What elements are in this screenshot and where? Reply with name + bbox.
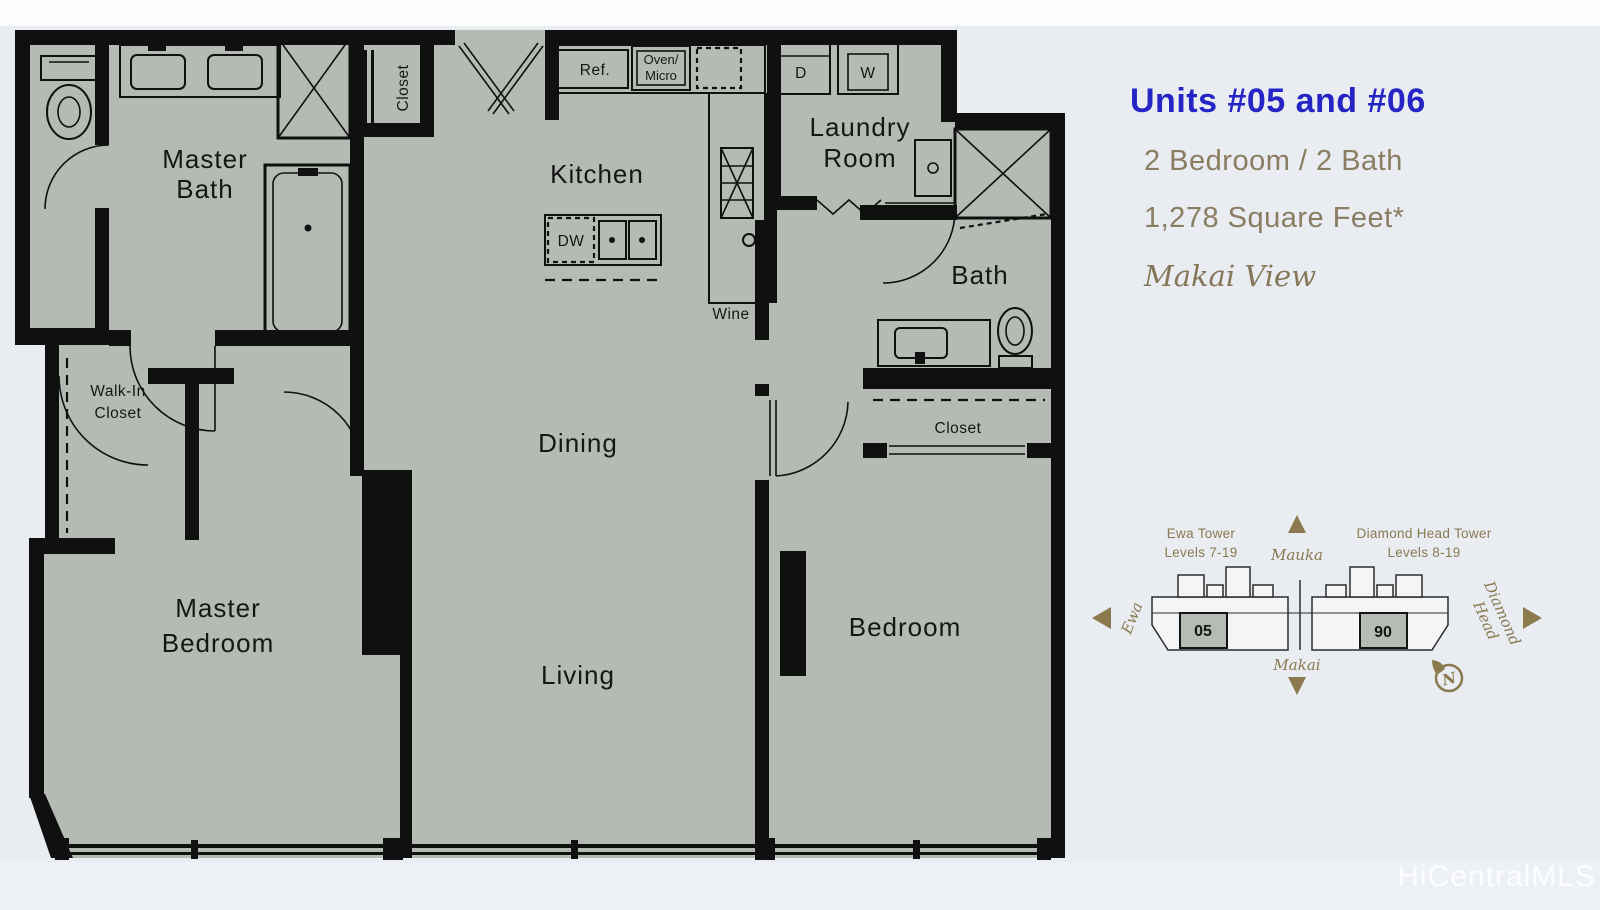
- compass-icon: N: [1432, 660, 1462, 691]
- ewa-arrow-icon: [1092, 607, 1111, 629]
- building-footprint: 05 06: [1152, 567, 1448, 650]
- bath-label: Bath: [951, 260, 1009, 290]
- dh-tower-levels: Levels 8-19: [1387, 545, 1460, 560]
- site-diagram: Ewa Tower Levels 7-19 Diamond Head Tower…: [1090, 505, 1570, 715]
- mauka-label: Mauka: [1270, 546, 1323, 564]
- living-label: Living: [541, 660, 615, 690]
- floorplan-drawing: Master Bath Closet Walk-In Closet: [15, 28, 1065, 860]
- master-bath-label: Master: [162, 144, 247, 174]
- laundry-label: Laundry: [810, 112, 911, 142]
- ewa-label-group: Ewa: [1117, 599, 1146, 637]
- washer-label: W: [860, 65, 875, 82]
- makai-label: Makai: [1272, 656, 1320, 674]
- diamond-head-arrow-icon: [1523, 607, 1542, 629]
- walk-in-closet-label: Walk-In: [90, 383, 145, 400]
- micro-label: Micro: [645, 68, 677, 83]
- sqft-line: 1,278 Square Feet*: [1144, 202, 1550, 235]
- watermark: HiCentralMLS: [1397, 860, 1596, 894]
- ewa-tower-label: Ewa Tower: [1167, 526, 1236, 541]
- oven-label: Oven/: [644, 52, 679, 67]
- entry-closet-label: Closet: [395, 64, 412, 111]
- ewa-label: Ewa: [1117, 599, 1146, 637]
- walk-in-closet-label-2: Closet: [95, 405, 142, 422]
- kitchen-label: Kitchen: [550, 159, 644, 189]
- diamond-head-label-group: Diamond Head: [1463, 578, 1524, 656]
- makai-arrow-icon: [1288, 677, 1306, 695]
- bedroom-label: Bedroom: [849, 612, 962, 642]
- bottom-margin: [0, 862, 1600, 910]
- master-bedroom-label-2: Bedroom: [162, 628, 275, 658]
- master-bedroom-label: Master: [175, 593, 260, 623]
- dining-label: Dining: [538, 428, 618, 458]
- info-panel: Units #05 and #06 2 Bedroom / 2 Bath 1,2…: [1130, 82, 1550, 293]
- bedroom-closet-label: Closet: [935, 420, 982, 437]
- mauka-arrow-icon: [1288, 515, 1306, 533]
- floorplan-page: Master Bath Closet Walk-In Closet: [0, 0, 1600, 910]
- wine-label: Wine: [712, 306, 749, 323]
- compass-n-label: N: [1439, 668, 1459, 690]
- ref-label: Ref.: [580, 62, 610, 79]
- top-margin: [0, 0, 1600, 26]
- bed-bath-line: 2 Bedroom / 2 Bath: [1144, 145, 1550, 178]
- view-line: Makai View: [1144, 259, 1550, 293]
- unit-05-label: 05: [1194, 623, 1212, 640]
- units-title: Units #05 and #06: [1130, 82, 1550, 121]
- dh-tower-label: Diamond Head Tower: [1357, 526, 1492, 541]
- laundry-label-2: Room: [823, 143, 896, 173]
- master-bath-label-2: Bath: [176, 174, 234, 204]
- dw-label: DW: [558, 233, 585, 250]
- dryer-label: D: [795, 65, 807, 82]
- ewa-tower-levels: Levels 7-19: [1164, 545, 1237, 560]
- unit-06-label: 06: [1374, 622, 1392, 639]
